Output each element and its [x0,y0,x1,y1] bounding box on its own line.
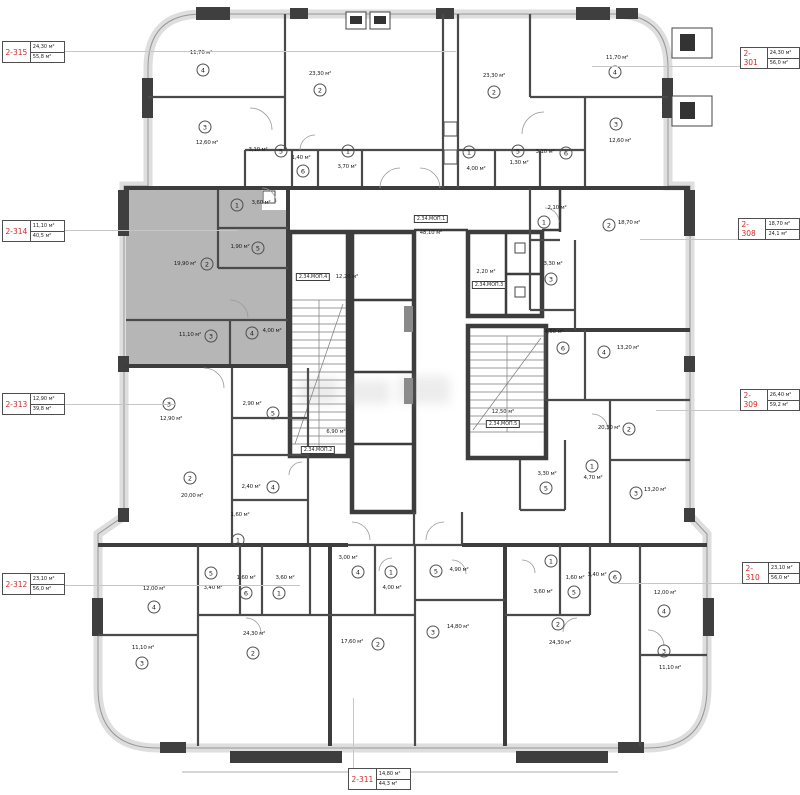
room-area-label: 12,60 м² [609,138,631,144]
room-area-label: 2,10 м² [548,205,567,211]
room-area-label: 11,10 м² [179,332,201,338]
room-number-badge: 2 [488,86,501,99]
room-number-badge: 2 [201,258,214,271]
room-area-label: 13,20 м² [617,345,639,351]
apartment-room-area: 11,10 м² [31,221,64,232]
room-number-badge: 5 [205,567,218,580]
room-area-label: 19,90 м² [174,261,196,267]
room-number-badge: 6 [560,147,573,160]
room-area-label: 11,10 м² [132,645,154,651]
apartment-areas: 24,30 м²56,0 м² [768,48,799,68]
room-number-badge: 5 [252,242,265,255]
room-area-label: 2,90 м² [243,401,262,407]
core-room-label: 2.34.МОП.4 [296,273,330,281]
core-room-area: 12,50 м² [492,409,515,415]
room-number-badge: 3 [136,657,149,670]
core-room-area: 12,20 м² [336,274,359,280]
apartment-areas: 24,30 м²55,8 м² [31,42,64,62]
apartment-areas: 18,70 м²24,1 м² [766,219,799,239]
room-number-badge: 5 [540,482,553,495]
room-area-label: 12,00 м² [654,590,676,596]
room-area-label: 4,90 м² [450,567,469,573]
apartment-room-area: 24,30 м² [31,42,64,53]
apartment-total-area: 55,8 м² [31,53,64,63]
apartment-tag-2-301[interactable]: 2-30124,30 м²56,0 м² [740,47,800,69]
room-area-label: 1,30 м² [510,160,529,166]
apartment-tag-2-309[interactable]: 2-30926,40 м²59,2 м² [740,389,800,411]
room-area-label: 3,60 м² [252,200,271,206]
apartment-number: 2-313 [3,394,31,414]
room-number-badge: 3 [199,121,212,134]
room-area-label: 12,00 м² [143,586,165,592]
room-area-label: 3,10 м² [536,149,555,155]
room-number-badge: 6 [557,342,570,355]
core-room-area: 48,10 м² [420,230,443,236]
apartment-tag-2-312[interactable]: 2-31223,10 м²56,0 м² [2,573,65,595]
room-area-label: 24,30 м² [243,631,265,637]
room-number-badge: 5 [267,407,280,420]
apartment-room-area: 14,80 м² [377,769,410,780]
room-area-label: 1,90 м² [231,244,250,250]
apartment-tag-2-313[interactable]: 2-31312,90 м²39,8 м² [2,393,65,415]
room-area-label: 3,10 м² [249,147,268,153]
apartment-number: 2-311 [349,769,377,789]
room-area-label: 3,30 м² [538,471,557,477]
room-area-label: 3,40 м² [588,572,607,578]
room-number-badge: 4 [197,64,210,77]
room-number-badge: 4 [267,481,280,494]
apartment-number: 2-308 [739,219,766,239]
room-area-label: 23,30 м² [309,71,331,77]
apartment-room-area: 18,70 м² [766,219,799,230]
room-area-label: 3,60 м² [534,589,553,595]
room-area-label: 11,10 м² [659,665,681,671]
core-room-label: 2.34.МОП.5 [486,420,520,428]
apartment-total-area: 24,1 м² [766,230,799,240]
room-number-badge: 3 [427,626,440,639]
room-area-label: 3,60 м² [276,575,295,581]
room-area-label: 18,70 м² [618,220,640,226]
room-number-badge: 5 [568,586,581,599]
room-area-label: 1,60 м² [237,575,256,581]
room-number-badge: 2 [603,219,616,232]
apartment-areas: 26,40 м²59,2 м² [768,390,799,410]
room-number-badge: 2 [552,618,565,631]
apartment-room-area: 24,30 м² [768,48,799,59]
leader-line-2-310 [618,583,742,584]
apartment-total-area: 39,8 м² [31,405,64,415]
room-number-badge: 6 [609,571,622,584]
room-number-badge: 4 [598,346,611,359]
room-number-badge: 3 [630,487,643,500]
room-number-badge: 4 [352,566,365,579]
room-number-badge: 1 [586,460,599,473]
apartment-tag-2-311[interactable]: 2-31114,80 м²44,3 м² [348,768,411,790]
room-area-label: 2,40 м² [242,484,261,490]
room-number-badge: 1 [232,534,245,547]
core-room-label: 2.34.МОП.3 [472,281,506,289]
apartment-tag-2-308[interactable]: 2-30818,70 м²24,1 м² [738,218,800,240]
room-area-label: 20,30 м² [598,425,620,431]
room-area-label: 17,60 м² [341,639,363,645]
leader-line-2-315 [62,51,456,52]
apartment-total-area: 44,3 м² [377,780,410,790]
room-number-badge: 6 [297,165,310,178]
room-number-badge: 2 [314,84,327,97]
apartment-number: 2-310 [743,563,769,583]
apartment-total-area: 56,0 м² [769,574,799,584]
room-area-label: 4,70 м² [584,475,603,481]
room-area-label: 4,50 м² [545,329,564,335]
leader-line-2-314 [62,230,238,231]
room-area-label: 3,00 м² [339,555,358,561]
apartment-number: 2-315 [3,42,31,62]
apartment-areas: 11,10 м²40,5 м² [31,221,64,241]
room-area-label: 1,60 м² [231,512,250,518]
room-number-badge: 2 [184,472,197,485]
core-room-area: 2,20 м² [476,269,495,275]
room-number-badge: 4 [148,601,161,614]
room-area-label: 4,00 м² [383,585,402,591]
leader-line-2-312 [62,585,300,586]
leader-line-2-309 [656,410,740,411]
room-number-badge: 3 [658,645,671,658]
room-number-badge: 1 [545,555,558,568]
labels-layer: 2-31524,30 м²55,8 м²2-31411,10 м²40,5 м²… [0,0,800,795]
room-number-badge: 4 [658,605,671,618]
room-area-label: 12,60 м² [196,140,218,146]
leader-line-2-301 [592,66,740,67]
room-number-badge: 2 [372,638,385,651]
room-number-badge: 1 [463,146,476,159]
room-number-badge: 3 [610,118,623,131]
apartment-total-area: 59,2 м² [768,401,799,411]
apartment-room-area: 23,10 м² [31,574,64,585]
room-area-label: 1,60 м² [566,575,585,581]
room-number-badge: 1 [385,566,398,579]
room-area-label: 23,30 м² [483,73,505,79]
floor-plan: 2-31524,30 м²55,8 м²2-31411,10 м²40,5 м²… [0,0,800,795]
room-number-badge: 5 [275,145,288,158]
apartment-number: 2-301 [741,48,768,68]
apartment-total-area: 56,0 м² [768,59,799,69]
room-area-label: 14,80 м² [447,624,469,630]
room-number-badge: 1 [342,145,355,158]
apartment-areas: 23,10 м²56,0 м² [769,563,799,583]
apartment-areas: 12,90 м²39,8 м² [31,394,64,414]
apartment-tag-2-315[interactable]: 2-31524,30 м²55,8 м² [2,41,65,63]
room-area-label: 11,70 м² [606,55,628,61]
apartment-total-area: 56,0 м² [31,585,64,595]
apartment-areas: 23,10 м²56,0 м² [31,574,64,594]
leader-line-2-311 [353,698,354,768]
room-number-badge: 6 [240,587,253,600]
apartment-room-area: 12,90 м² [31,394,64,405]
leader-line-2-313 [62,404,176,405]
room-number-badge: 1 [231,199,244,212]
room-number-badge: 4 [609,66,622,79]
apartment-room-area: 23,10 м² [769,563,799,574]
room-number-badge: 5 [430,565,443,578]
apartment-number: 2-314 [3,221,31,241]
room-area-label: 4,00 м² [467,166,486,172]
room-number-badge: 2 [247,647,260,660]
core-room-area: 6,90 м² [326,429,345,435]
apartment-number: 2-309 [741,390,768,410]
core-room-label: 2.34.МОП.2 [301,446,335,454]
apartment-tag-2-314[interactable]: 2-31411,10 м²40,5 м² [2,220,65,242]
apartment-room-area: 26,40 м² [768,390,799,401]
room-number-badge: 3 [205,330,218,343]
room-area-label: 13,20 м² [644,487,666,493]
room-area-label: 3,70 м² [338,164,357,170]
room-area-label: 24,30 м² [549,640,571,646]
room-area-label: 12,90 м² [160,416,182,422]
room-number-badge: 5 [512,145,525,158]
apartment-areas: 14,80 м²44,3 м² [377,769,410,789]
room-area-label: 4,00 м² [263,328,282,334]
room-number-badge: 3 [545,273,558,286]
room-number-badge: 4 [246,327,259,340]
room-area-label: 20,00 м² [181,493,203,499]
apartment-total-area: 40,5 м² [31,232,64,242]
room-area-label: 3,30 м² [544,261,563,267]
leader-line-2-308 [640,239,738,240]
apartment-tag-2-310[interactable]: 2-31023,10 м²56,0 м² [742,562,800,584]
room-number-badge: 1 [538,216,551,229]
room-area-label: 1,40 м² [292,155,311,161]
core-room-label: 2.34.МОП.1 [414,215,448,223]
room-number-badge: 1 [273,587,286,600]
apartment-number: 2-312 [3,574,31,594]
room-number-badge: 2 [623,423,636,436]
